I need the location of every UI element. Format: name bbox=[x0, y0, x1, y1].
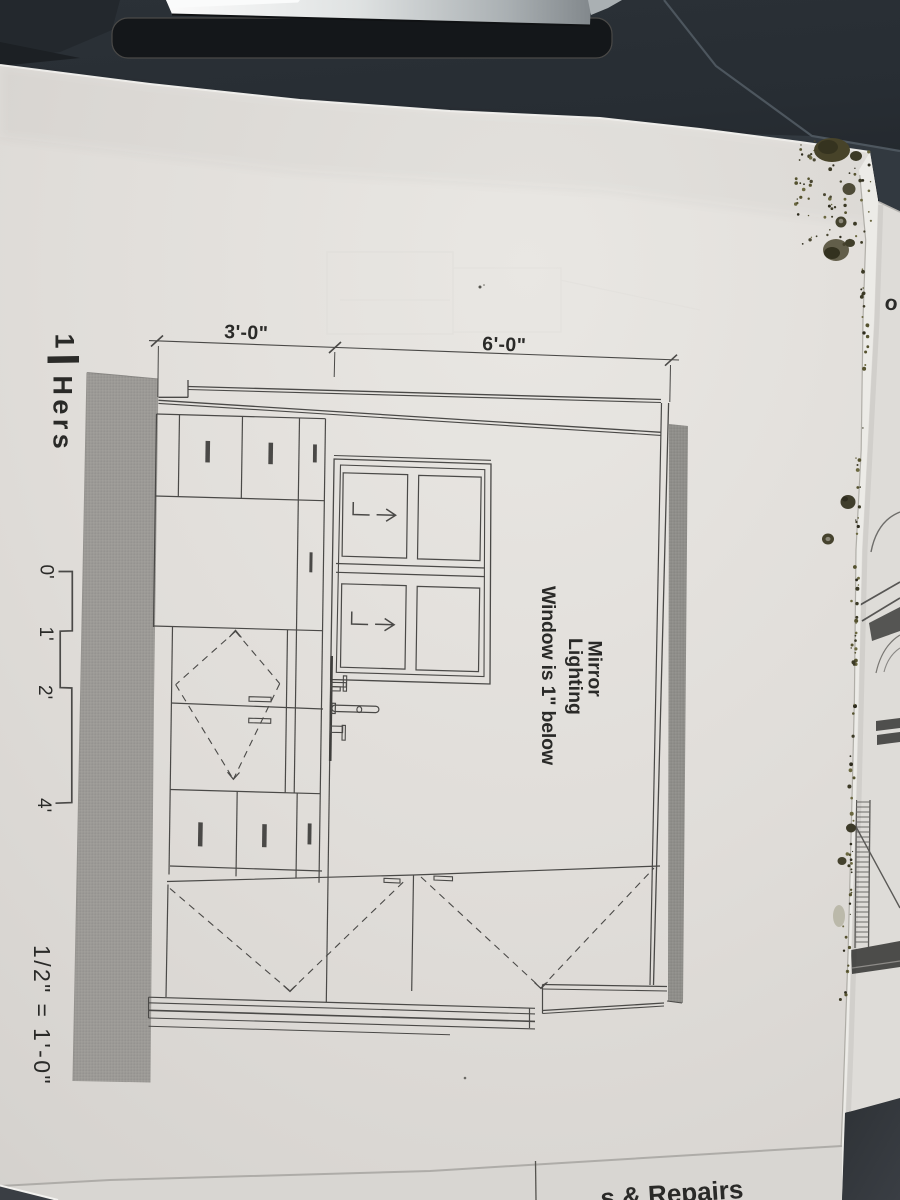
svg-text:Window is 1" below: Window is 1" below bbox=[537, 586, 559, 766]
svg-text:1': 1' bbox=[35, 627, 56, 641]
svg-text:Lighting: Lighting bbox=[564, 638, 586, 715]
svg-text:Hers: Hers bbox=[48, 376, 78, 454]
svg-text:0': 0' bbox=[36, 565, 57, 579]
svg-text:6'-0": 6'-0" bbox=[482, 333, 527, 357]
svg-text:1: 1 bbox=[50, 334, 80, 349]
svg-text:2': 2' bbox=[34, 685, 55, 699]
svg-text:1/2" = 1'-0": 1/2" = 1'-0" bbox=[29, 945, 55, 1086]
svg-text:3'-0": 3'-0" bbox=[224, 321, 269, 345]
svg-text:4': 4' bbox=[33, 798, 54, 812]
